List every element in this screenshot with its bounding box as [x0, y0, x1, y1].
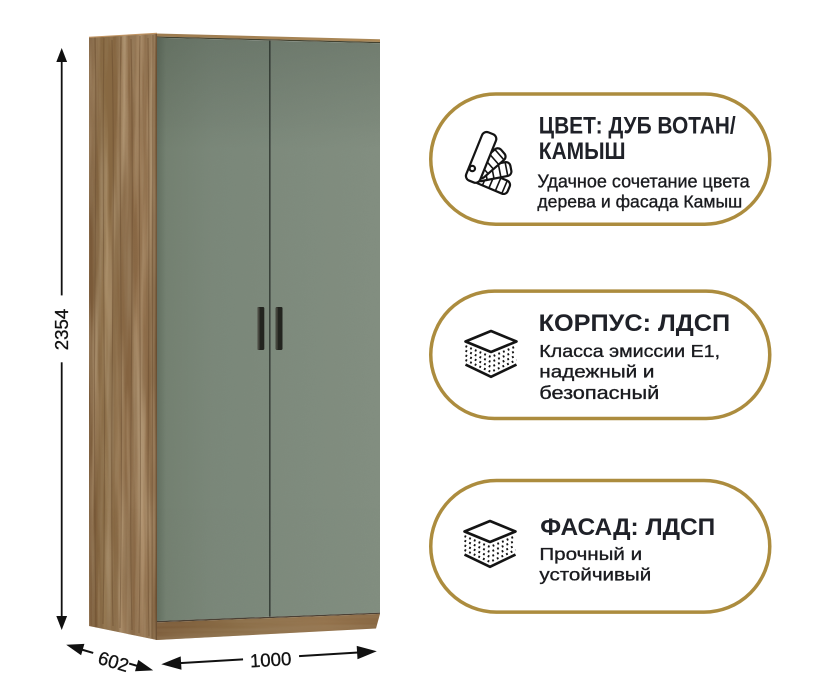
svg-text:надежный и: надежный и [539, 362, 654, 382]
svg-text:Класса эмиссии Е1,: Класса эмиссии Е1, [539, 341, 720, 361]
svg-text:устойчивый: устойчивый [539, 565, 651, 585]
svg-text:ЦВЕТ: ДУБ ВОТАН/: ЦВЕТ: ДУБ ВОТАН/ [539, 112, 737, 139]
svg-text:КАМЫШ: КАМЫШ [539, 138, 626, 165]
svg-text:602: 602 [96, 647, 132, 676]
svg-text:Прочный и: Прочный и [539, 545, 642, 565]
svg-text:КОРПУС: ЛДСП: КОРПУС: ЛДСП [539, 311, 731, 337]
svg-text:2354: 2354 [51, 309, 72, 350]
svg-text:1000: 1000 [249, 648, 292, 671]
svg-text:ФАСАД: ЛДСП: ФАСАД: ЛДСП [540, 514, 715, 541]
svg-text:Удачное сочетание цвета: Удачное сочетание цвета [537, 172, 750, 192]
svg-text:безопасный: безопасный [539, 384, 659, 404]
svg-text:дерева и фасада Камыш: дерева и фасада Камыш [537, 191, 742, 211]
